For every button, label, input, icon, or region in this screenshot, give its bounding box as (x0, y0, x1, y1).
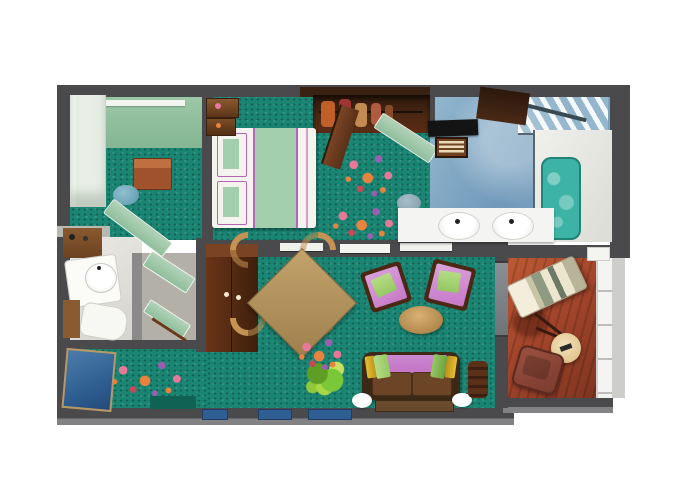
armchair-1-pillow (370, 272, 397, 298)
pillow-right-inset (223, 187, 239, 217)
toilet-wood-vanity (63, 228, 102, 258)
sink-right-faucet (509, 219, 514, 224)
table-top-item (560, 343, 573, 352)
white-wardrobe (70, 95, 106, 207)
sink-right (492, 212, 534, 240)
nightstand-1 (206, 98, 239, 118)
nightstand-flower (215, 103, 221, 109)
amenity-tray (435, 137, 468, 158)
walk-in-closet (313, 95, 430, 133)
king-bed (212, 128, 316, 228)
armchair-1-cushion (365, 266, 408, 309)
armchair-2-pillow (437, 271, 462, 294)
armchair-2-cushion (428, 263, 472, 307)
amenity-tray-slots (439, 141, 464, 154)
bedroom-flower-motifs-1 (344, 142, 398, 202)
door-threshold-hall (340, 244, 390, 253)
nightstand-decor (216, 123, 221, 128)
floor-plan-image (0, 0, 680, 486)
bed-fold-line (306, 128, 308, 228)
suite-floor-plan (57, 85, 630, 425)
outer-wall-right (610, 85, 630, 258)
wardrobe-knob-2 (236, 295, 241, 300)
sink-left (438, 212, 480, 240)
hall-runner (150, 396, 196, 409)
sofa-rug (375, 400, 454, 412)
pillow-left-inset (223, 139, 239, 169)
sofa (362, 352, 460, 400)
balcony-wall-bottom (503, 398, 613, 413)
double-sink-counter (398, 208, 554, 242)
black-vanity-top (428, 119, 479, 137)
toilet-wood-floor (63, 300, 80, 338)
washbasin-faucet (97, 266, 101, 270)
washbasin (85, 263, 117, 293)
sofa-pillow-yellow-right (445, 355, 458, 378)
hull-edge (612, 258, 625, 398)
wardrobe-knob-1 (224, 292, 229, 297)
blue-door-mat (61, 348, 116, 412)
nightstand-2 (206, 118, 236, 136)
toilet-mirror-wall (132, 253, 142, 340)
door-threshold-bathroom (400, 243, 452, 251)
balcony-sliding-door (495, 261, 508, 337)
entry-door-mat-2 (258, 409, 292, 420)
entry-door-mat-3 (308, 409, 352, 420)
deck-chair-seat (521, 354, 552, 380)
planter-urn (468, 361, 488, 398)
oval-coffee-table (399, 306, 443, 334)
pillow-left (217, 133, 247, 177)
pillow-right (217, 181, 247, 225)
hall-flower-motifs (108, 352, 192, 400)
living-flower-motifs (298, 331, 346, 373)
floor-dome-left (352, 393, 372, 408)
bathroom-wood-door (476, 87, 530, 126)
vanity-accessory (83, 236, 88, 241)
bedroom-flower-motifs-2 (330, 200, 402, 242)
entry-door-mat-1 (202, 409, 228, 420)
vanity-faucet (69, 234, 75, 240)
balcony-threshold (587, 247, 610, 261)
wood-side-table (133, 158, 172, 190)
sink-left-faucet (455, 219, 460, 224)
bed-green-runner (253, 128, 298, 228)
entry-wardrobe-seam (231, 257, 232, 352)
